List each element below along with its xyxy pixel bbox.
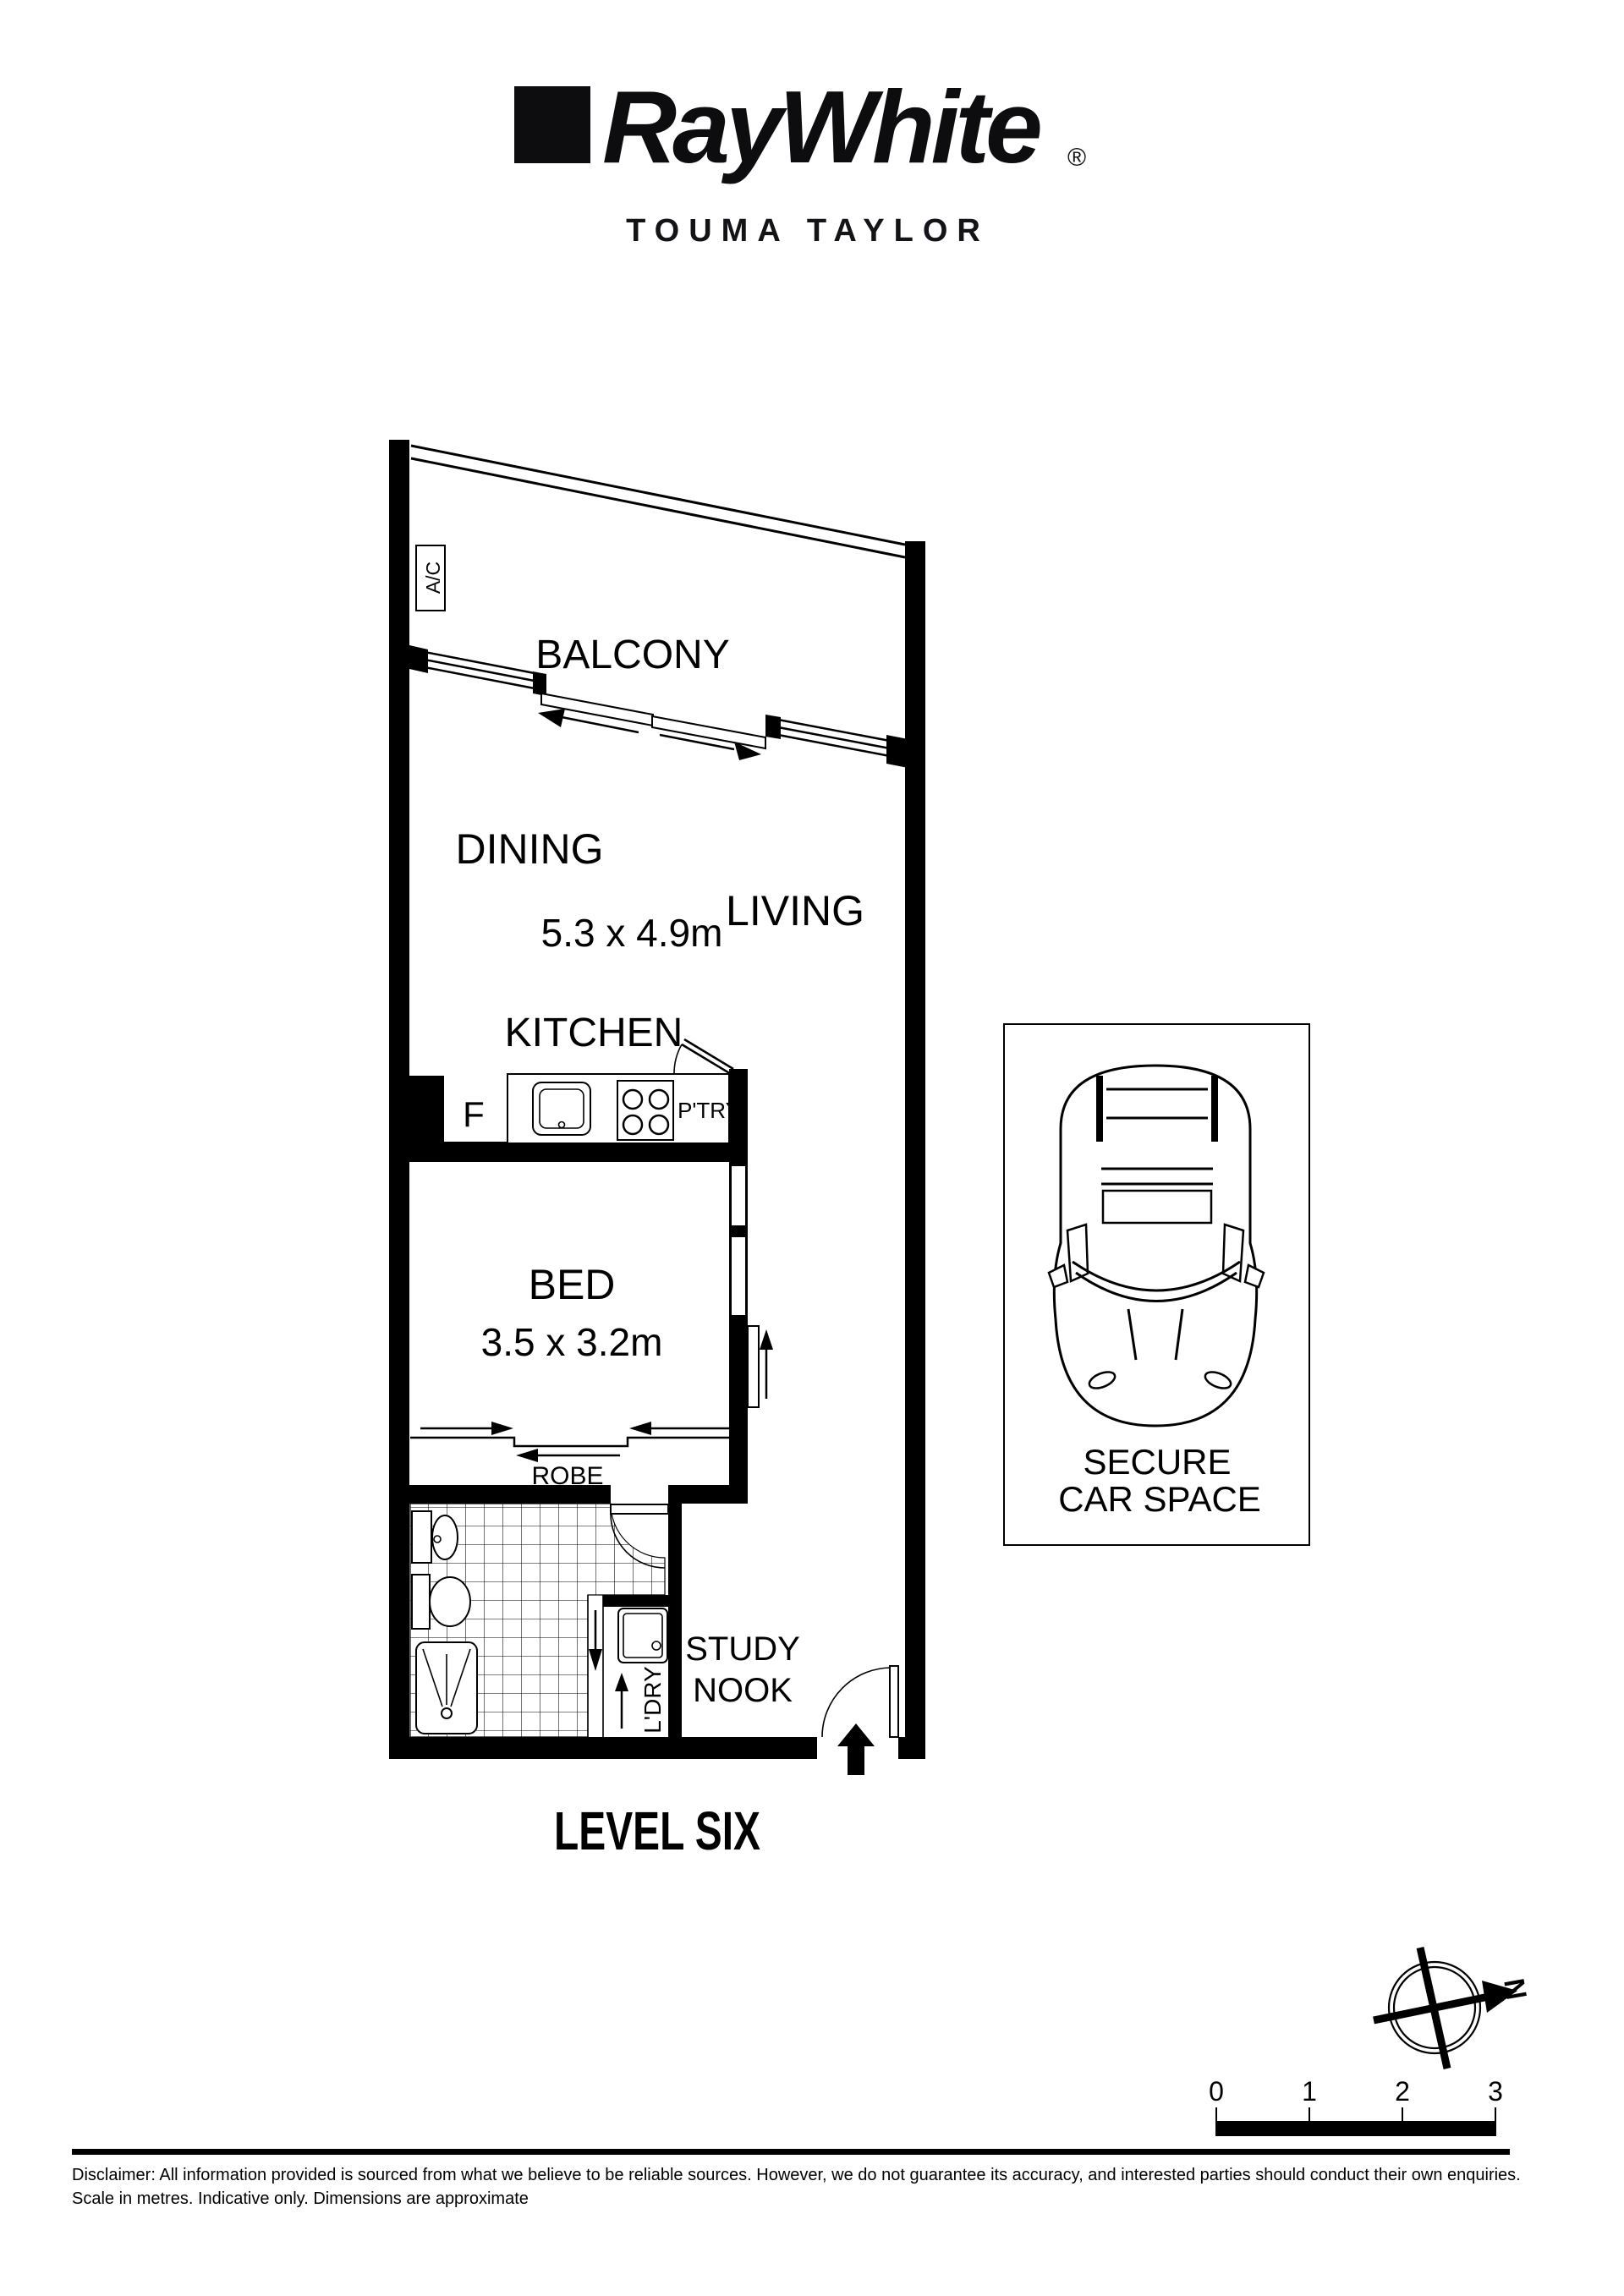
living-dining-area: DINING LIVING 5.3 x 4.9m	[456, 825, 864, 955]
north-label: N	[1497, 1976, 1533, 2003]
balustrade-line-inner	[411, 458, 905, 557]
window-left	[425, 652, 539, 689]
entry-door	[822, 1666, 898, 1775]
scale-bar-rule	[1215, 2121, 1496, 2136]
scale-tick-label-2: 2	[1395, 2076, 1410, 2107]
fridge-label: F	[463, 1094, 485, 1134]
robe-arrow-right	[420, 1422, 513, 1435]
disclaimer-line-1: Disclaimer: All information provided is …	[72, 2165, 1521, 2185]
cooktop-icon	[617, 1081, 673, 1140]
laundry-door-slide-arrow	[615, 1673, 628, 1729]
bedroom-door-slide-arrow	[760, 1329, 773, 1399]
bedroom-glass-panel-2	[731, 1236, 746, 1316]
footer-divider	[72, 2149, 1510, 2155]
shower-icon	[416, 1642, 477, 1734]
car-space-label-line1: SECURE	[1083, 1442, 1231, 1482]
study-nook-area: STUDY NOOK	[685, 1630, 800, 1709]
wall-laundry-top	[603, 1595, 668, 1607]
bedroom-area: BED 3.5 x 3.2m	[389, 1162, 773, 1504]
room-label-dining: DINING	[456, 825, 604, 873]
room-label-bed: BED	[529, 1261, 616, 1308]
room-label-balcony: BALCONY	[535, 633, 729, 677]
scale-tick-label-3: 3	[1488, 2076, 1503, 2107]
car-space: SECURE CAR SPACE	[1004, 1024, 1309, 1545]
bathroom-area: L'DRY	[410, 1499, 682, 1737]
study-nook-label-line2: NOOK	[693, 1672, 793, 1709]
floorplan-page: RayWhite ® TOUMA TAYLOR A/C BALCONY	[0, 0, 1624, 2296]
room-dims-living: 5.3 x 4.9m	[541, 911, 723, 955]
study-nook-label-line1: STUDY	[685, 1630, 800, 1668]
car-top-view-icon	[1049, 1066, 1264, 1426]
room-label-kitchen: KITCHEN	[505, 1011, 683, 1055]
car-space-label-line2: CAR SPACE	[1058, 1479, 1261, 1519]
wall-bottom	[389, 1737, 817, 1759]
balcony-area: A/C BALCONY	[411, 446, 905, 677]
scale-tick-label-0: 0	[1209, 2076, 1224, 2107]
wall-study-nook	[668, 1499, 682, 1737]
wall-bed-bottom-left	[389, 1485, 611, 1504]
robe-arrow-left	[629, 1422, 730, 1435]
pantry-label: P'TRY	[678, 1098, 740, 1123]
wall-kitchen-bed-divider	[389, 1142, 748, 1162]
door-post-left	[533, 671, 546, 696]
robe-arrow-lower	[516, 1449, 620, 1462]
room-dims-bed: 3.5 x 3.2m	[481, 1320, 663, 1364]
sink-icon	[533, 1082, 590, 1135]
laundry: L'DRY	[603, 1595, 668, 1734]
robe-door-track	[410, 1438, 729, 1446]
level-label: LEVEL SIX	[554, 1800, 760, 1861]
wall-bottom-right-corner	[898, 1737, 925, 1759]
wall-left	[389, 440, 409, 1759]
laundry-label: L'DRY	[639, 1666, 666, 1734]
bedroom-glass-panel-1	[731, 1165, 746, 1226]
floor-plan-drawing: A/C BALCONY	[0, 0, 1624, 2296]
entry-door-leaf	[890, 1666, 898, 1737]
bathroom-door-slide-arrow	[589, 1610, 602, 1671]
scale-bar: 0 1 2 3	[1209, 2076, 1503, 2136]
washing-machine-icon	[618, 1608, 667, 1663]
balustrade-line-outer	[411, 446, 905, 545]
pantry-door	[674, 1039, 733, 1074]
toilet-icon	[412, 1575, 470, 1629]
entry-arrow-icon	[837, 1723, 875, 1775]
kitchen-area: KITCHEN F P'TRY	[389, 1011, 748, 1162]
ac-label: A/C	[422, 562, 444, 594]
window-right	[778, 720, 890, 756]
wall-right	[905, 541, 925, 1759]
compass-icon: N	[1374, 1948, 1533, 2069]
disclaimer-line-2: Scale in metres. Indicative only. Dimens…	[72, 2189, 529, 2209]
scale-tick-label-1: 1	[1302, 2076, 1317, 2107]
bedroom-sliding-door-leaf	[748, 1326, 759, 1407]
robe: ROBE	[410, 1422, 730, 1490]
room-label-living: LIVING	[726, 887, 864, 934]
